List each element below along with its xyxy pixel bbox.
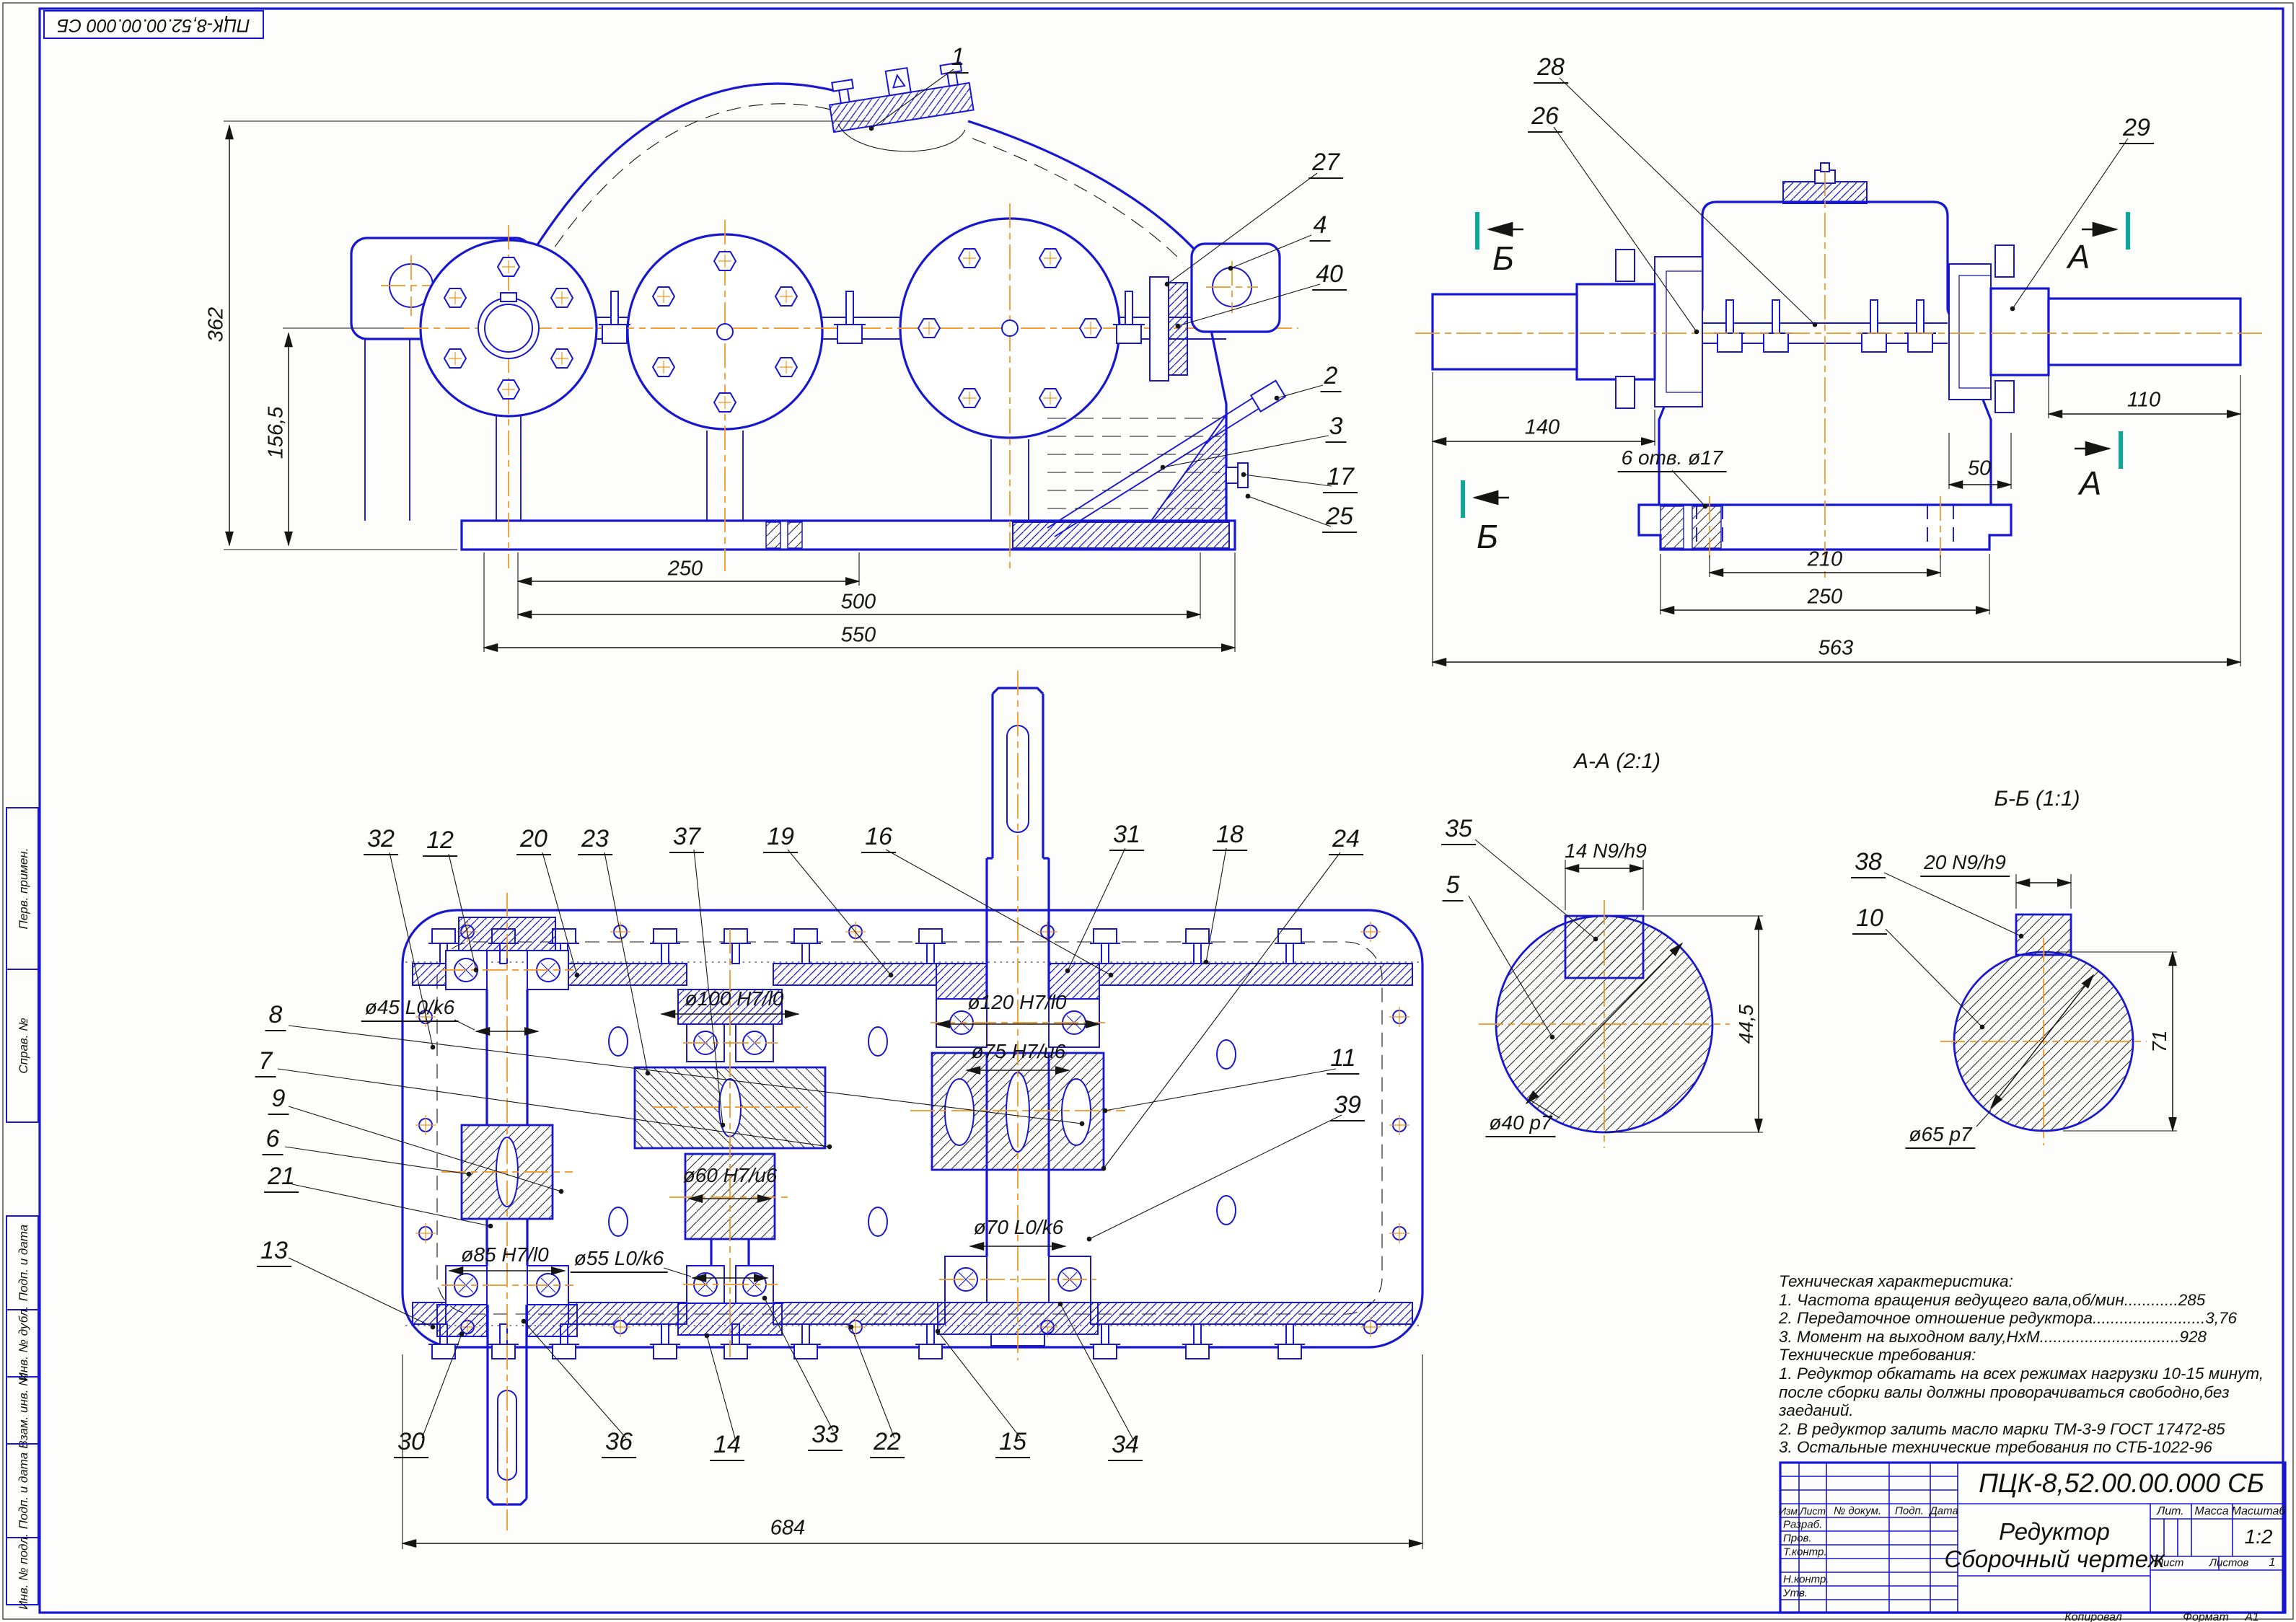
tech-line: 1. Редуктор обкатать на всех режимах наг…	[1779, 1365, 2284, 1383]
margin-cell: Инв. № дубл.	[6, 1309, 39, 1378]
label-fit-55: ø55 L0/k6	[571, 1248, 668, 1273]
label-callout-11: 11	[1327, 1046, 1359, 1075]
tech-line: 2. Передаточное отношение редуктора.....…	[1779, 1309, 2284, 1328]
doc-number-stamp-text: ПЦК-8,52.00.00.000 СБ	[57, 14, 250, 35]
label-fit-85: ø85 H7/l0	[461, 1245, 548, 1265]
title-sheet-label: Лист	[2156, 1557, 2184, 1569]
label-callout-30: 30	[394, 1429, 428, 1458]
label-dim-362: 362	[206, 307, 227, 342]
title-mass-label: Масса	[2194, 1505, 2228, 1518]
title-role-utv: Утв.	[1783, 1587, 1808, 1600]
label-callout-12: 12	[423, 828, 457, 857]
margin-label: Перв. примен.	[17, 848, 31, 930]
doc-number-stamp: ПЦК-8,52.00.00.000 СБ	[43, 10, 264, 39]
label-callout-29: 29	[2119, 115, 2154, 144]
label-callout-39: 39	[1330, 1093, 1365, 1121]
title-name-line2: Сборочный чертеж	[1945, 1546, 2165, 1573]
side-view	[1415, 78, 2262, 666]
title-col-list: Лист	[1800, 1505, 1826, 1517]
title-role-tkontr: Т.контр.	[1783, 1546, 1827, 1559]
label-callout-18: 18	[1213, 822, 1247, 851]
label-callout-5: 5	[1443, 873, 1464, 902]
title-role-razrab: Разраб.	[1783, 1519, 1822, 1531]
margin-table-top: Перв. примен. Справ. №	[6, 808, 39, 1123]
title-scale-label: Масштаб	[2232, 1505, 2286, 1518]
label-dim-71: 71	[2150, 1030, 2170, 1052]
label-callout-23: 23	[578, 827, 612, 855]
title-role-nkontr: Н.контр.	[1783, 1574, 1829, 1586]
tech-line: 1. Частота вращения ведущего вала,об/мин…	[1779, 1291, 2284, 1310]
label-callout-35: 35	[1441, 816, 1476, 845]
margin-label: Инв. № подл.	[17, 1533, 31, 1610]
margin-label: Подп. и дата	[17, 1453, 31, 1529]
footer-kopiroval: Копировал	[2064, 1611, 2122, 1622]
margin-cell: Подп. и дата	[6, 1443, 39, 1538]
label-dim-156-5: 156,5	[266, 407, 287, 459]
label-dim-110: 110	[2127, 390, 2160, 411]
section-aa	[1469, 839, 1763, 1148]
label-callout-10: 10	[1852, 906, 1887, 935]
margin-cell: Справ. №	[6, 969, 39, 1123]
label-callout-19: 19	[763, 824, 798, 853]
label-dim-key-14: 14 N9/h9	[1565, 841, 1647, 861]
title-scale-value: 1:2	[2245, 1525, 2273, 1548]
label-callout-33: 33	[808, 1422, 843, 1451]
tech-line: 3. Момент на выходном валу,НхМ..........…	[1779, 1328, 2284, 1346]
title-col-doc: № докум.	[1834, 1505, 1881, 1517]
label-dim-250-front: 250	[668, 559, 703, 580]
label-callout-34: 34	[1108, 1432, 1143, 1461]
tech-line: после сборки валы должны проворачиваться…	[1779, 1383, 2284, 1420]
label-fit-40: ø40 p7	[1485, 1113, 1555, 1137]
margin-cell: Инв. № подл.	[6, 1537, 39, 1605]
label-callout-28: 28	[1534, 55, 1568, 84]
label-callout-17: 17	[1323, 464, 1358, 493]
label-fit-65: ø65 p7	[1905, 1124, 1975, 1149]
label-callout-15: 15	[995, 1429, 1030, 1458]
label-callout-9: 9	[268, 1086, 289, 1115]
label-dim-50: 50	[1968, 459, 1991, 480]
label-callout-40: 40	[1312, 262, 1347, 291]
label-callout-13: 13	[257, 1238, 291, 1267]
tech-line: 2. В редуктор залить масло марки ТМ-3-9 …	[1779, 1420, 2284, 1439]
title-name-line1: Редуктор	[1999, 1518, 2110, 1546]
margin-table-bottom: Подп. и дата Инв. № дубл. Взам. инв. № П…	[6, 1217, 39, 1605]
title-doc-number: ПЦК-8,52.00.00.000 СБ	[1979, 1468, 2264, 1499]
label-callout-2: 2	[1321, 363, 1342, 392]
label-callout-25: 25	[1322, 504, 1357, 533]
label-dim-key-20: 20 N9/h9	[1920, 852, 2010, 877]
label-fit-100: ø100 H7/l0	[685, 989, 784, 1009]
label-callout-8: 8	[265, 1002, 286, 1031]
label-callout-4: 4	[1310, 213, 1331, 242]
title-col-data: Дата	[1930, 1505, 1958, 1517]
title-sheets-label: Листов	[2209, 1557, 2249, 1569]
label-section-aa-title: А-А (2:1)	[1574, 751, 1661, 772]
label-callout-14: 14	[710, 1432, 744, 1461]
label-dim-44-5: 44,5	[1736, 1005, 1756, 1044]
title-col-podp: Подп.	[1895, 1505, 1924, 1517]
label-fit-75: ø75 H7/u6	[972, 1041, 1066, 1062]
tech-line: Техническая характеристика:	[1779, 1272, 2284, 1291]
margin-label: Справ. №	[17, 1018, 31, 1073]
label-callout-1: 1	[948, 45, 969, 74]
label-callout-21: 21	[264, 1164, 299, 1193]
label-callout-38: 38	[1851, 850, 1886, 878]
label-callout-6: 6	[263, 1127, 283, 1155]
label-callout-27: 27	[1308, 150, 1343, 179]
label-callout-32: 32	[364, 827, 398, 855]
label-dim-550: 550	[841, 625, 876, 646]
title-col-izm: Изм.	[1779, 1505, 1800, 1517]
label-callout-36: 36	[602, 1429, 636, 1458]
section-bb	[1884, 873, 2177, 1145]
margin-cell: Подп. и дата	[6, 1215, 39, 1310]
label-section-letter-b-bottom: Б	[1477, 520, 1498, 553]
title-sheets-value: 1	[2269, 1556, 2276, 1569]
label-fit-120: ø120 H7/l0	[968, 992, 1067, 1013]
tech-line: Технические требования:	[1779, 1346, 2284, 1365]
footer-format-label: Формат	[2183, 1611, 2229, 1622]
tech-line: 3. Остальные технические требования по С…	[1779, 1438, 2284, 1457]
title-lit-label: Лит.	[2157, 1505, 2183, 1518]
label-dim-210: 210	[1808, 550, 1842, 570]
margin-cell: Взам. инв. №	[6, 1376, 39, 1445]
label-dim-684: 684	[770, 1518, 805, 1539]
label-dim-563: 563	[1818, 638, 1853, 659]
drawing-sheet: ПЦК-8,52.00.00.000 СБ Перв. примен. Спра…	[0, 0, 2296, 1622]
label-section-letter-a-top: А	[2068, 240, 2090, 273]
label-fit-70: ø70 L0/k6	[974, 1217, 1064, 1238]
front-view	[224, 58, 1332, 652]
label-callout-26: 26	[1528, 104, 1562, 133]
margin-label: Взам. инв. №	[17, 1372, 31, 1448]
label-callout-37: 37	[669, 824, 704, 853]
label-dim-250-side: 250	[1808, 587, 1842, 608]
margin-label: Подп. и дата	[17, 1225, 31, 1301]
footer-format-value: А1	[2245, 1611, 2259, 1622]
label-fit-60: ø60 H7/u6	[683, 1165, 778, 1186]
label-callout-24: 24	[1329, 827, 1363, 855]
label-note-6-holes: 6 отв. ø17	[1618, 448, 1727, 472]
margin-cell: Перв. примен.	[6, 807, 39, 970]
plan-section-view	[278, 671, 1422, 1549]
technical-requirements: Техническая характеристика: 1. Частота в…	[1779, 1272, 2284, 1457]
margin-label: Инв. № дубл.	[17, 1305, 31, 1381]
label-section-letter-a-bottom: А	[2080, 467, 2102, 500]
label-callout-31: 31	[1109, 822, 1144, 851]
label-fit-45: ø45 L0/k6	[361, 997, 459, 1022]
label-section-bb-title: Б-Б (1:1)	[1994, 788, 2080, 810]
label-dim-500: 500	[841, 592, 876, 613]
label-callout-20: 20	[516, 827, 551, 855]
label-section-letter-b-top: Б	[1492, 242, 1514, 275]
label-callout-16: 16	[861, 824, 896, 853]
label-callout-3: 3	[1326, 414, 1347, 443]
label-callout-22: 22	[870, 1429, 905, 1458]
title-role-prov: Пров.	[1783, 1533, 1812, 1545]
label-callout-7: 7	[255, 1049, 276, 1077]
label-dim-140: 140	[1525, 418, 1560, 438]
